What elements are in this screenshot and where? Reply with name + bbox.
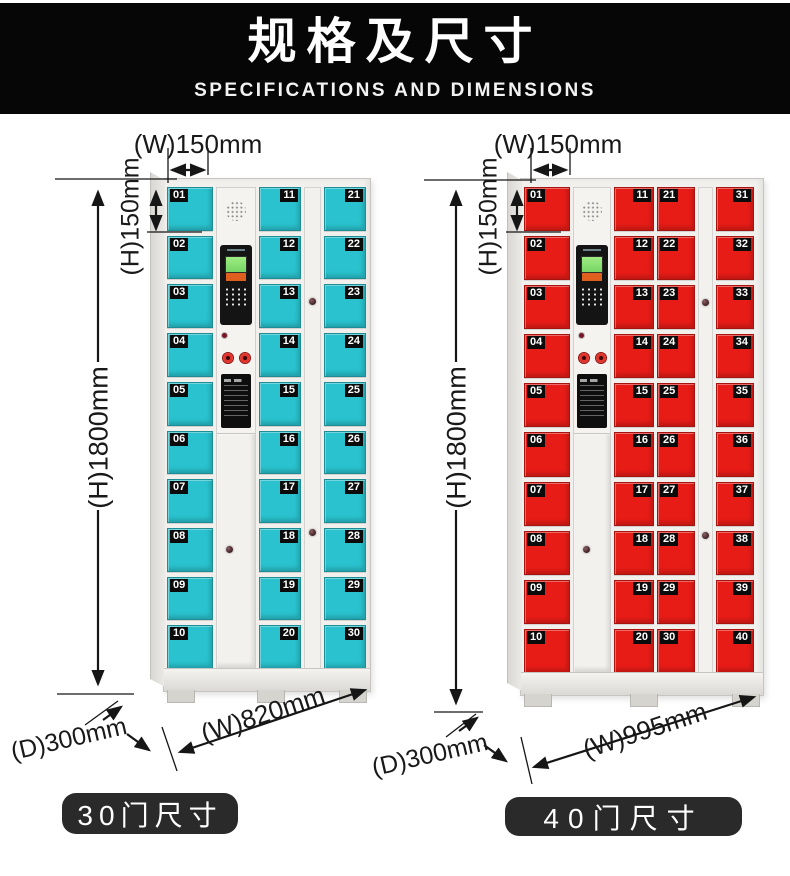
- section-header: 规格及尺寸 SPECIFICATIONS AND DIMENSIONS: [0, 3, 790, 114]
- size-button-40-door[interactable]: 40门尺寸: [505, 797, 742, 836]
- locker-door: 21: [657, 187, 695, 231]
- locker-door: 05: [167, 382, 213, 426]
- door-number-badge: 01: [527, 189, 545, 202]
- size-button-30-door[interactable]: 30门尺寸: [62, 793, 238, 834]
- locker-door: 02: [524, 236, 570, 280]
- door-grid: 0102030405060708091011121314151617181920…: [524, 187, 760, 673]
- service-door: [217, 433, 255, 668]
- door-number-badge: 10: [527, 631, 545, 644]
- keyhole-icon: [309, 298, 316, 305]
- locker-door: 10: [167, 625, 213, 669]
- red-button-icon: [579, 353, 589, 363]
- locker-door: 16: [259, 431, 301, 475]
- door-number-badge: 33: [733, 287, 751, 300]
- door-number-badge: 30: [345, 627, 363, 640]
- locker-door: 12: [614, 236, 654, 280]
- door-number-badge: 27: [345, 481, 363, 494]
- door-number-badge: 08: [170, 530, 188, 543]
- door-number-badge: 04: [170, 335, 188, 348]
- door-number-badge: 21: [345, 189, 363, 202]
- door-number-badge: 29: [345, 579, 363, 592]
- locker-door: 11: [614, 187, 654, 231]
- door-number-badge: 25: [660, 385, 678, 398]
- locker-door: 06: [167, 431, 213, 475]
- door-number-badge: 12: [633, 238, 651, 251]
- button-row: [574, 353, 610, 363]
- keyhole-icon: [702, 532, 709, 539]
- locker-door: 04: [524, 334, 570, 378]
- locker-door: 03: [524, 285, 570, 329]
- door-number-badge: 13: [633, 287, 651, 300]
- locker-door: 09: [524, 580, 570, 624]
- door-number-badge: 34: [733, 336, 751, 349]
- locker-door: 15: [614, 383, 654, 427]
- door-number-badge: 03: [170, 286, 188, 299]
- terminal-panel: [576, 245, 608, 325]
- door-number-badge: 06: [527, 434, 545, 447]
- brand-logo: [583, 249, 601, 251]
- service-door: [574, 433, 610, 672]
- keyhole-icon: [226, 546, 233, 553]
- door-number-badge: 03: [527, 287, 545, 300]
- locker-door: 36: [716, 432, 754, 476]
- door-number-badge: 30: [660, 631, 678, 644]
- locker-door: 28: [657, 531, 695, 575]
- locker-foot: [732, 694, 760, 707]
- locker-door: 23: [324, 284, 366, 328]
- red-button-icon: [223, 353, 233, 363]
- red-button-icon: [596, 353, 606, 363]
- door-number-badge: 01: [170, 189, 188, 202]
- page-title: 规格及尺寸: [247, 18, 542, 67]
- door-number-badge: 13: [280, 286, 298, 299]
- locker-door: 08: [167, 528, 213, 572]
- screen-banner: [226, 272, 246, 281]
- door-number-badge: 15: [633, 385, 651, 398]
- locker-door: 27: [324, 479, 366, 523]
- frame-strip: [304, 187, 321, 669]
- locker-door: 07: [167, 479, 213, 523]
- speaker-grille-icon: [582, 201, 602, 221]
- locker-door: 38: [716, 531, 754, 575]
- door-number-badge: 09: [170, 579, 188, 592]
- locker-door: 27: [657, 482, 695, 526]
- locker-door: 19: [259, 577, 301, 621]
- locker-door: 29: [657, 580, 695, 624]
- locker-door: 26: [657, 432, 695, 476]
- locker-foot: [630, 694, 658, 707]
- control-column: [216, 187, 256, 669]
- button-row: [217, 353, 255, 363]
- door-number-badge: 11: [280, 189, 298, 202]
- locker-door: 34: [716, 334, 754, 378]
- spec-image: 规格及尺寸 SPECIFICATIONS AND DIMENSIONS 0102…: [0, 0, 790, 876]
- keyhole-icon: [309, 529, 316, 536]
- door-number-badge: 24: [345, 335, 363, 348]
- door-number-badge: 38: [733, 533, 751, 546]
- door-number-badge: 18: [280, 530, 298, 543]
- locker-door: 19: [614, 580, 654, 624]
- info-sticker: [221, 374, 251, 428]
- page-subtitle: SPECIFICATIONS AND DIMENSIONS: [194, 80, 596, 102]
- door-number-badge: 20: [633, 631, 651, 644]
- locker-door: 14: [614, 334, 654, 378]
- door-number-badge: 14: [280, 335, 298, 348]
- locker-door: 26: [324, 431, 366, 475]
- info-sticker: [577, 374, 607, 428]
- door-grid: 0102030405060708091011121314151617181920…: [167, 187, 367, 669]
- locker-door: 30: [657, 629, 695, 673]
- locker-door: 18: [259, 528, 301, 572]
- locker-door: 20: [259, 625, 301, 669]
- locker-30-door: 0102030405060708091011121314151617181920…: [163, 178, 371, 692]
- locker-40-door: 0102030405060708091011121314151617181920…: [520, 178, 764, 696]
- door-number-badge: 32: [733, 238, 751, 251]
- locker-side-panel: [507, 172, 522, 691]
- door-number-badge: 09: [527, 582, 545, 595]
- dim-label-depth: (D)300mm: [6, 712, 131, 768]
- door-number-badge: 28: [345, 530, 363, 543]
- locker-door: 40: [716, 629, 754, 673]
- control-panel: [217, 188, 255, 428]
- locker-foot: [339, 690, 367, 703]
- locker-door: 05: [524, 383, 570, 427]
- door-number-badge: 07: [527, 484, 545, 497]
- door-number-badge: 29: [660, 582, 678, 595]
- door-number-badge: 16: [633, 434, 651, 447]
- locker-door: 29: [324, 577, 366, 621]
- keypad: [580, 287, 604, 307]
- door-column: 01020304050607080910: [167, 187, 213, 669]
- locker-door: 22: [324, 236, 366, 280]
- door-number-badge: 07: [170, 481, 188, 494]
- door-number-badge: 26: [660, 434, 678, 447]
- locker-foot: [167, 690, 195, 703]
- door-number-badge: 27: [660, 484, 678, 497]
- door-column: 31323334353637383940: [716, 187, 754, 673]
- door-number-badge: 04: [527, 336, 545, 349]
- door-number-badge: 31: [733, 189, 751, 202]
- door-number-badge: 37: [733, 484, 751, 497]
- keypad: [224, 287, 248, 307]
- locker-base: [521, 672, 763, 695]
- dim-label-depth: (D)300mm: [367, 728, 492, 784]
- control-column: [573, 187, 611, 673]
- locker-door: 39: [716, 580, 754, 624]
- locker-door: 08: [524, 531, 570, 575]
- door-number-badge: 14: [633, 336, 651, 349]
- door-number-badge: 17: [280, 481, 298, 494]
- locker-foot: [524, 694, 552, 707]
- dim-label-cell-height: (H)150mm: [475, 164, 504, 276]
- locker-door: 33: [716, 285, 754, 329]
- door-number-badge: 18: [633, 533, 651, 546]
- door-column: 01020304050607080910: [524, 187, 570, 673]
- locker-door: 28: [324, 528, 366, 572]
- locker-door: 35: [716, 383, 754, 427]
- door-number-badge: 19: [633, 582, 651, 595]
- locker-door: 30: [324, 625, 366, 669]
- locker-door: 14: [259, 333, 301, 377]
- door-number-badge: 11: [633, 189, 651, 202]
- door-number-badge: 05: [527, 385, 545, 398]
- locker-door: 09: [167, 577, 213, 621]
- locker-door: 18: [614, 531, 654, 575]
- door-number-badge: 21: [660, 189, 678, 202]
- locker-door: 15: [259, 382, 301, 426]
- door-number-badge: 23: [345, 286, 363, 299]
- door-number-badge: 25: [345, 384, 363, 397]
- door-number-badge: 23: [660, 287, 678, 300]
- door-number-badge: 10: [170, 627, 188, 640]
- door-number-badge: 02: [527, 238, 545, 251]
- keyhole-icon: [583, 546, 590, 553]
- dim-label-cell-height: (H)150mm: [117, 164, 146, 276]
- indicator-led-icon: [579, 333, 584, 338]
- door-number-badge: 39: [733, 582, 751, 595]
- door-column: 21222324252627282930: [657, 187, 695, 673]
- control-panel: [574, 188, 610, 428]
- terminal-panel: [220, 245, 252, 325]
- door-number-badge: 40: [733, 631, 751, 644]
- door-number-badge: 24: [660, 336, 678, 349]
- speaker-grille-icon: [226, 201, 246, 221]
- door-number-badge: 16: [280, 433, 298, 446]
- locker-door: 03: [167, 284, 213, 328]
- locker-door: 20: [614, 629, 654, 673]
- locker-base: [164, 668, 370, 691]
- locker-door: 13: [614, 285, 654, 329]
- door-column: 11121314151617181920: [614, 187, 654, 673]
- locker-door: 11: [259, 187, 301, 231]
- locker-door: 10: [524, 629, 570, 673]
- frame-strip: [698, 187, 713, 673]
- door-number-badge: 17: [633, 484, 651, 497]
- locker-door: 07: [524, 482, 570, 526]
- door-number-badge: 36: [733, 434, 751, 447]
- locker-door: 32: [716, 236, 754, 280]
- door-number-badge: 08: [527, 533, 545, 546]
- door-number-badge: 26: [345, 433, 363, 446]
- door-column: 11121314151617181920: [259, 187, 301, 669]
- door-number-badge: 28: [660, 533, 678, 546]
- locker-door: 24: [657, 334, 695, 378]
- door-column: 21222324252627282930: [324, 187, 366, 669]
- locker-door: 25: [324, 382, 366, 426]
- door-number-badge: 22: [345, 238, 363, 251]
- door-number-badge: 35: [733, 385, 751, 398]
- door-number-badge: 19: [280, 579, 298, 592]
- locker-door: 06: [524, 432, 570, 476]
- door-number-badge: 15: [280, 384, 298, 397]
- locker-door: 16: [614, 432, 654, 476]
- screen: [226, 257, 246, 272]
- locker-door: 23: [657, 285, 695, 329]
- locker-door: 24: [324, 333, 366, 377]
- locker-door: 21: [324, 187, 366, 231]
- locker-door: 17: [614, 482, 654, 526]
- brand-logo: [227, 249, 245, 251]
- door-number-badge: 06: [170, 433, 188, 446]
- door-number-badge: 22: [660, 238, 678, 251]
- locker-door: 04: [167, 333, 213, 377]
- door-number-badge: 20: [280, 627, 298, 640]
- door-number-badge: 02: [170, 238, 188, 251]
- dim-label-height: (H)1800mm: [84, 365, 115, 511]
- locker-door: 01: [167, 187, 213, 231]
- locker-door: 13: [259, 284, 301, 328]
- locker-door: 12: [259, 236, 301, 280]
- screen-banner: [582, 272, 602, 281]
- door-number-badge: 12: [280, 238, 298, 251]
- door-number-badge: 05: [170, 384, 188, 397]
- indicator-led-icon: [222, 333, 227, 338]
- locker-door: 37: [716, 482, 754, 526]
- dim-label-cell-width: (W)150mm: [128, 129, 268, 160]
- dim-label-height: (H)1800mm: [442, 365, 473, 511]
- keyhole-icon: [702, 299, 709, 306]
- locker-door: 02: [167, 236, 213, 280]
- dim-label-cell-width: (W)150mm: [488, 129, 628, 160]
- locker-door: 17: [259, 479, 301, 523]
- screen: [582, 257, 602, 272]
- locker-door: 01: [524, 187, 570, 231]
- locker-side-panel: [150, 172, 165, 687]
- locker-door: 22: [657, 236, 695, 280]
- locker-door: 25: [657, 383, 695, 427]
- locker-door: 31: [716, 187, 754, 231]
- red-button-icon: [240, 353, 250, 363]
